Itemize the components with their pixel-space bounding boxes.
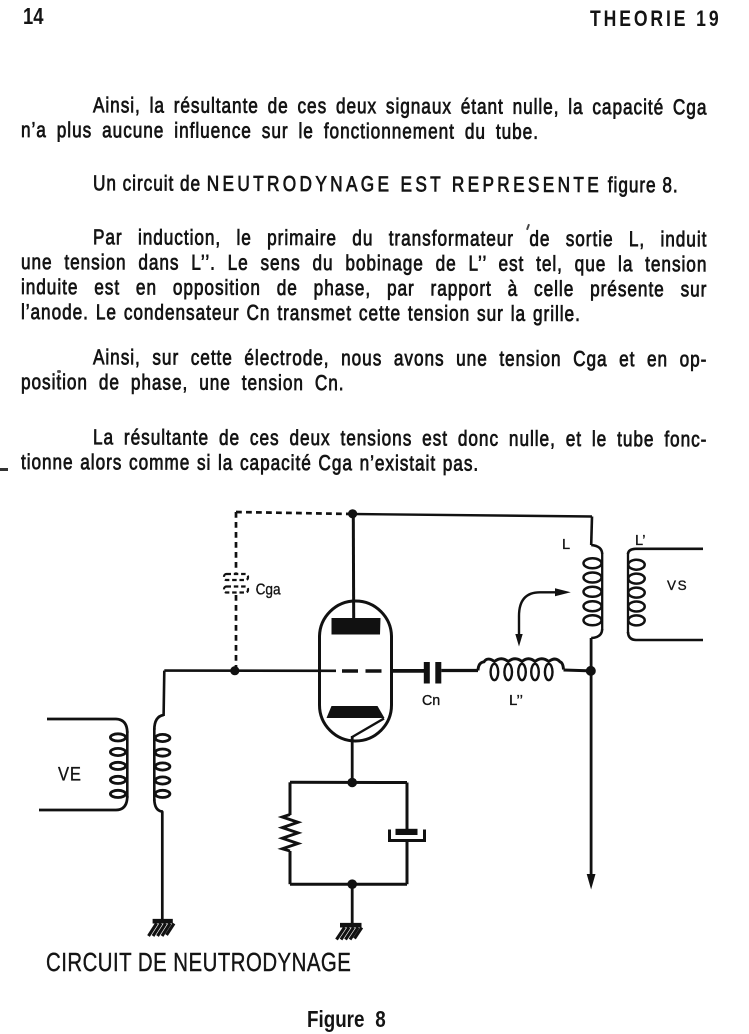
svg-text:VE: VE — [58, 763, 82, 785]
svg-text:Cga: Cga — [256, 582, 282, 599]
svg-text:VS: VS — [667, 578, 688, 593]
svg-text:L: L — [562, 537, 570, 553]
svg-text:L’’: L’’ — [509, 692, 523, 709]
svg-text:Cn: Cn — [422, 693, 440, 709]
svg-text:L’: L’ — [635, 533, 646, 549]
